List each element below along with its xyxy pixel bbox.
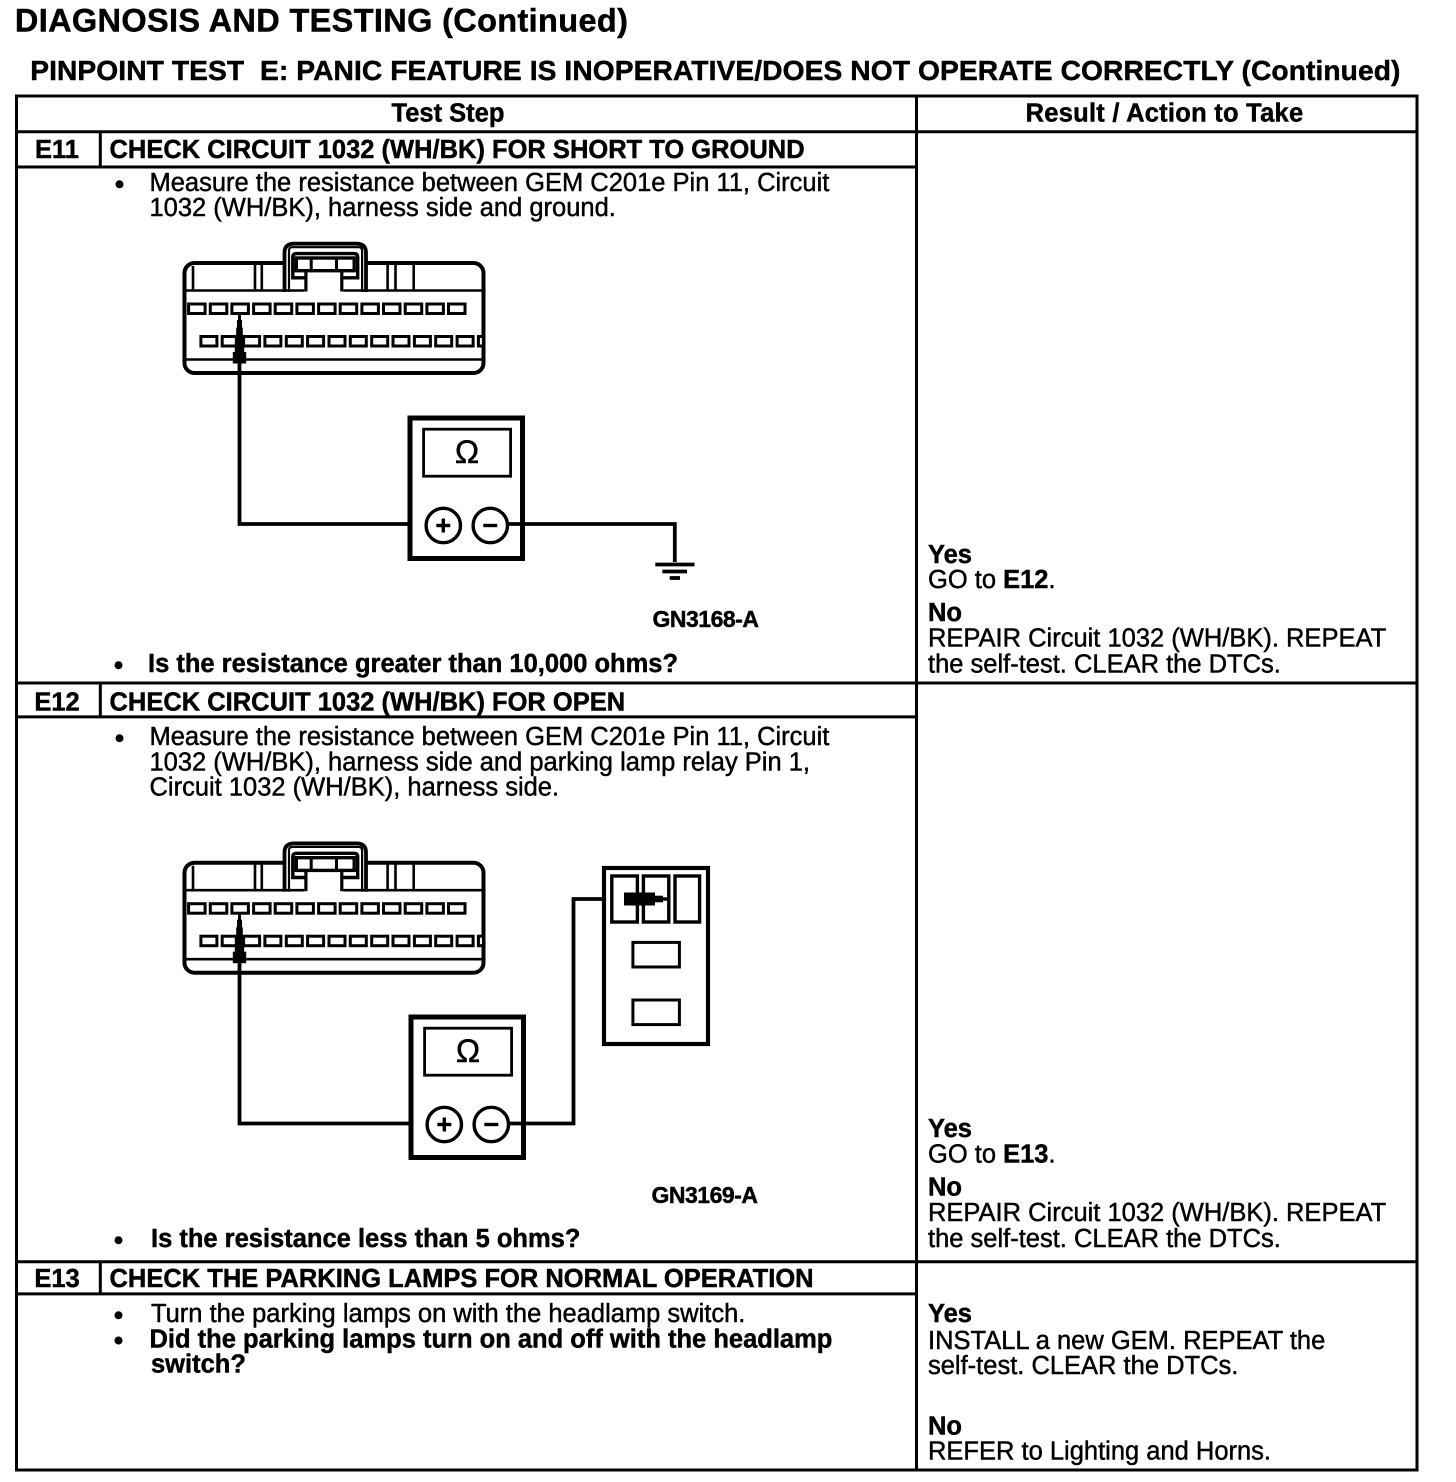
svg-text:Turn the parking lamps on with: Turn the parking lamps on with the headl…	[151, 1300, 745, 1328]
svg-text:E11: E11	[35, 136, 79, 164]
svg-text:Yes: Yes	[928, 1115, 972, 1143]
svg-text:CHECK CIRCUIT 1032 (WH/BK) FOR: CHECK CIRCUIT 1032 (WH/BK) FOR SHORT TO …	[110, 136, 805, 164]
svg-text:1032 (WH/BK), harness side and: 1032 (WH/BK), harness side and ground.	[150, 194, 616, 222]
svg-text:Circuit 1032 (WH/BK), harness: Circuit 1032 (WH/BK), harness side.	[150, 773, 560, 801]
svg-text:GO to E13.: GO to E13.	[928, 1141, 1056, 1169]
svg-text:Yes: Yes	[928, 1300, 972, 1328]
svg-text:Did the parking lamps turn on: Did the parking lamps turn on and off wi…	[150, 1325, 833, 1353]
svg-text:CHECK CIRCUIT 1032 (WH/BK) FOR: CHECK CIRCUIT 1032 (WH/BK) FOR OPEN	[110, 689, 626, 717]
svg-text:REPAIR Circuit 1032 (WH/BK). R: REPAIR Circuit 1032 (WH/BK). REPEAT	[928, 1199, 1386, 1227]
svg-text:INSTALL a new GEM. REPEAT the: INSTALL a new GEM. REPEAT the	[928, 1327, 1325, 1355]
svg-text:E13: E13	[34, 1265, 79, 1293]
svg-text:GO to E12.: GO to E12.	[928, 566, 1056, 594]
svg-text:the self-test. CLEAR the DTCs.: the self-test. CLEAR the DTCs.	[928, 1225, 1281, 1253]
svg-text:GN3168-A: GN3168-A	[653, 606, 759, 632]
svg-text:Is the resistance greater than: Is the resistance greater than 10,000 oh…	[148, 650, 678, 678]
svg-text:Test Step: Test Step	[392, 99, 505, 127]
svg-text:Result / Action to Take: Result / Action to Take	[1026, 99, 1304, 127]
svg-text:self-test. CLEAR the DTCs.: self-test. CLEAR the DTCs.	[928, 1352, 1238, 1380]
svg-text:Measure the resistance between: Measure the resistance between GEM C201e…	[150, 723, 830, 751]
svg-text:No: No	[928, 1174, 962, 1202]
svg-text:switch?: switch?	[151, 1350, 246, 1378]
svg-text:No: No	[928, 599, 962, 627]
svg-text:No: No	[928, 1413, 962, 1441]
svg-text:REPAIR Circuit 1032 (WH/BK). R: REPAIR Circuit 1032 (WH/BK). REPEAT	[928, 625, 1386, 653]
svg-text:DIAGNOSIS AND TESTING (Continu: DIAGNOSIS AND TESTING (Continued)	[15, 3, 628, 39]
svg-text:Measure the resistance between: Measure the resistance between GEM C201e…	[150, 169, 830, 197]
svg-text:REFER to Lighting and Horns.: REFER to Lighting and Horns.	[928, 1438, 1271, 1466]
svg-text:the self-test. CLEAR the DTCs.: the self-test. CLEAR the DTCs.	[928, 650, 1281, 678]
svg-text:1032 (WH/BK), harness side and: 1032 (WH/BK), harness side and parking l…	[150, 748, 811, 776]
svg-text:Yes: Yes	[928, 541, 972, 569]
svg-text:GN3169-A: GN3169-A	[652, 1182, 758, 1208]
svg-text:CHECK THE PARKING LAMPS FOR NO: CHECK THE PARKING LAMPS FOR NORMAL OPERA…	[110, 1265, 814, 1293]
svg-text:PINPOINT TEST E: PANIC FEATUR: PINPOINT TEST E: PANIC FEATURE IS INOPER…	[30, 54, 1400, 86]
svg-text:E12: E12	[34, 689, 79, 717]
svg-text:Is the resistance less than 5: Is the resistance less than 5 ohms?	[151, 1225, 580, 1253]
